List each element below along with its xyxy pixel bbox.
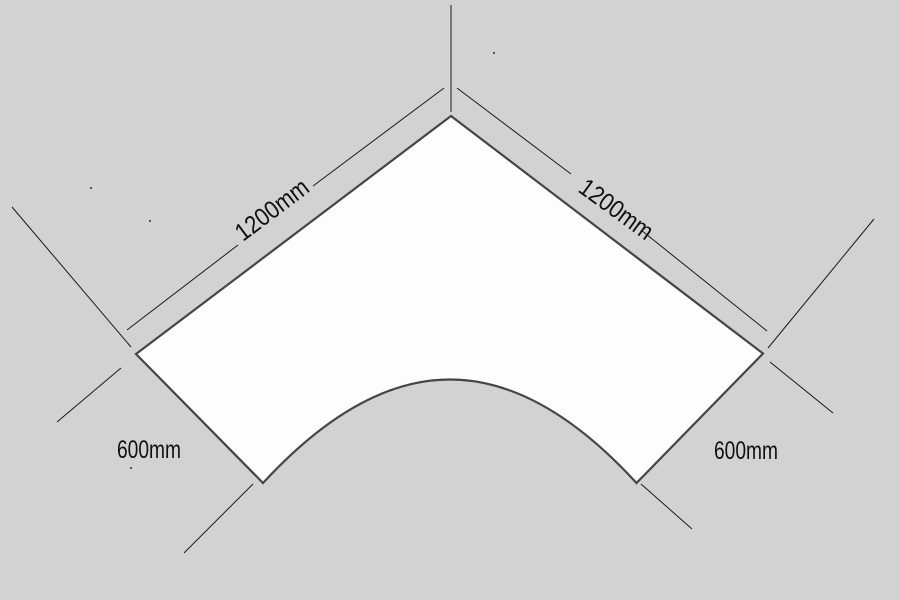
speck-dot	[90, 187, 92, 189]
dim-label-left-side: 600mm	[117, 436, 181, 464]
speck-dot	[493, 52, 495, 54]
desk-drawing-canvas: 1200mm 1200mm 600mm 600mm	[0, 0, 900, 600]
dim-label-right-side: 600mm	[714, 437, 778, 465]
speck-dot	[130, 467, 132, 469]
speck-dot	[149, 220, 151, 222]
